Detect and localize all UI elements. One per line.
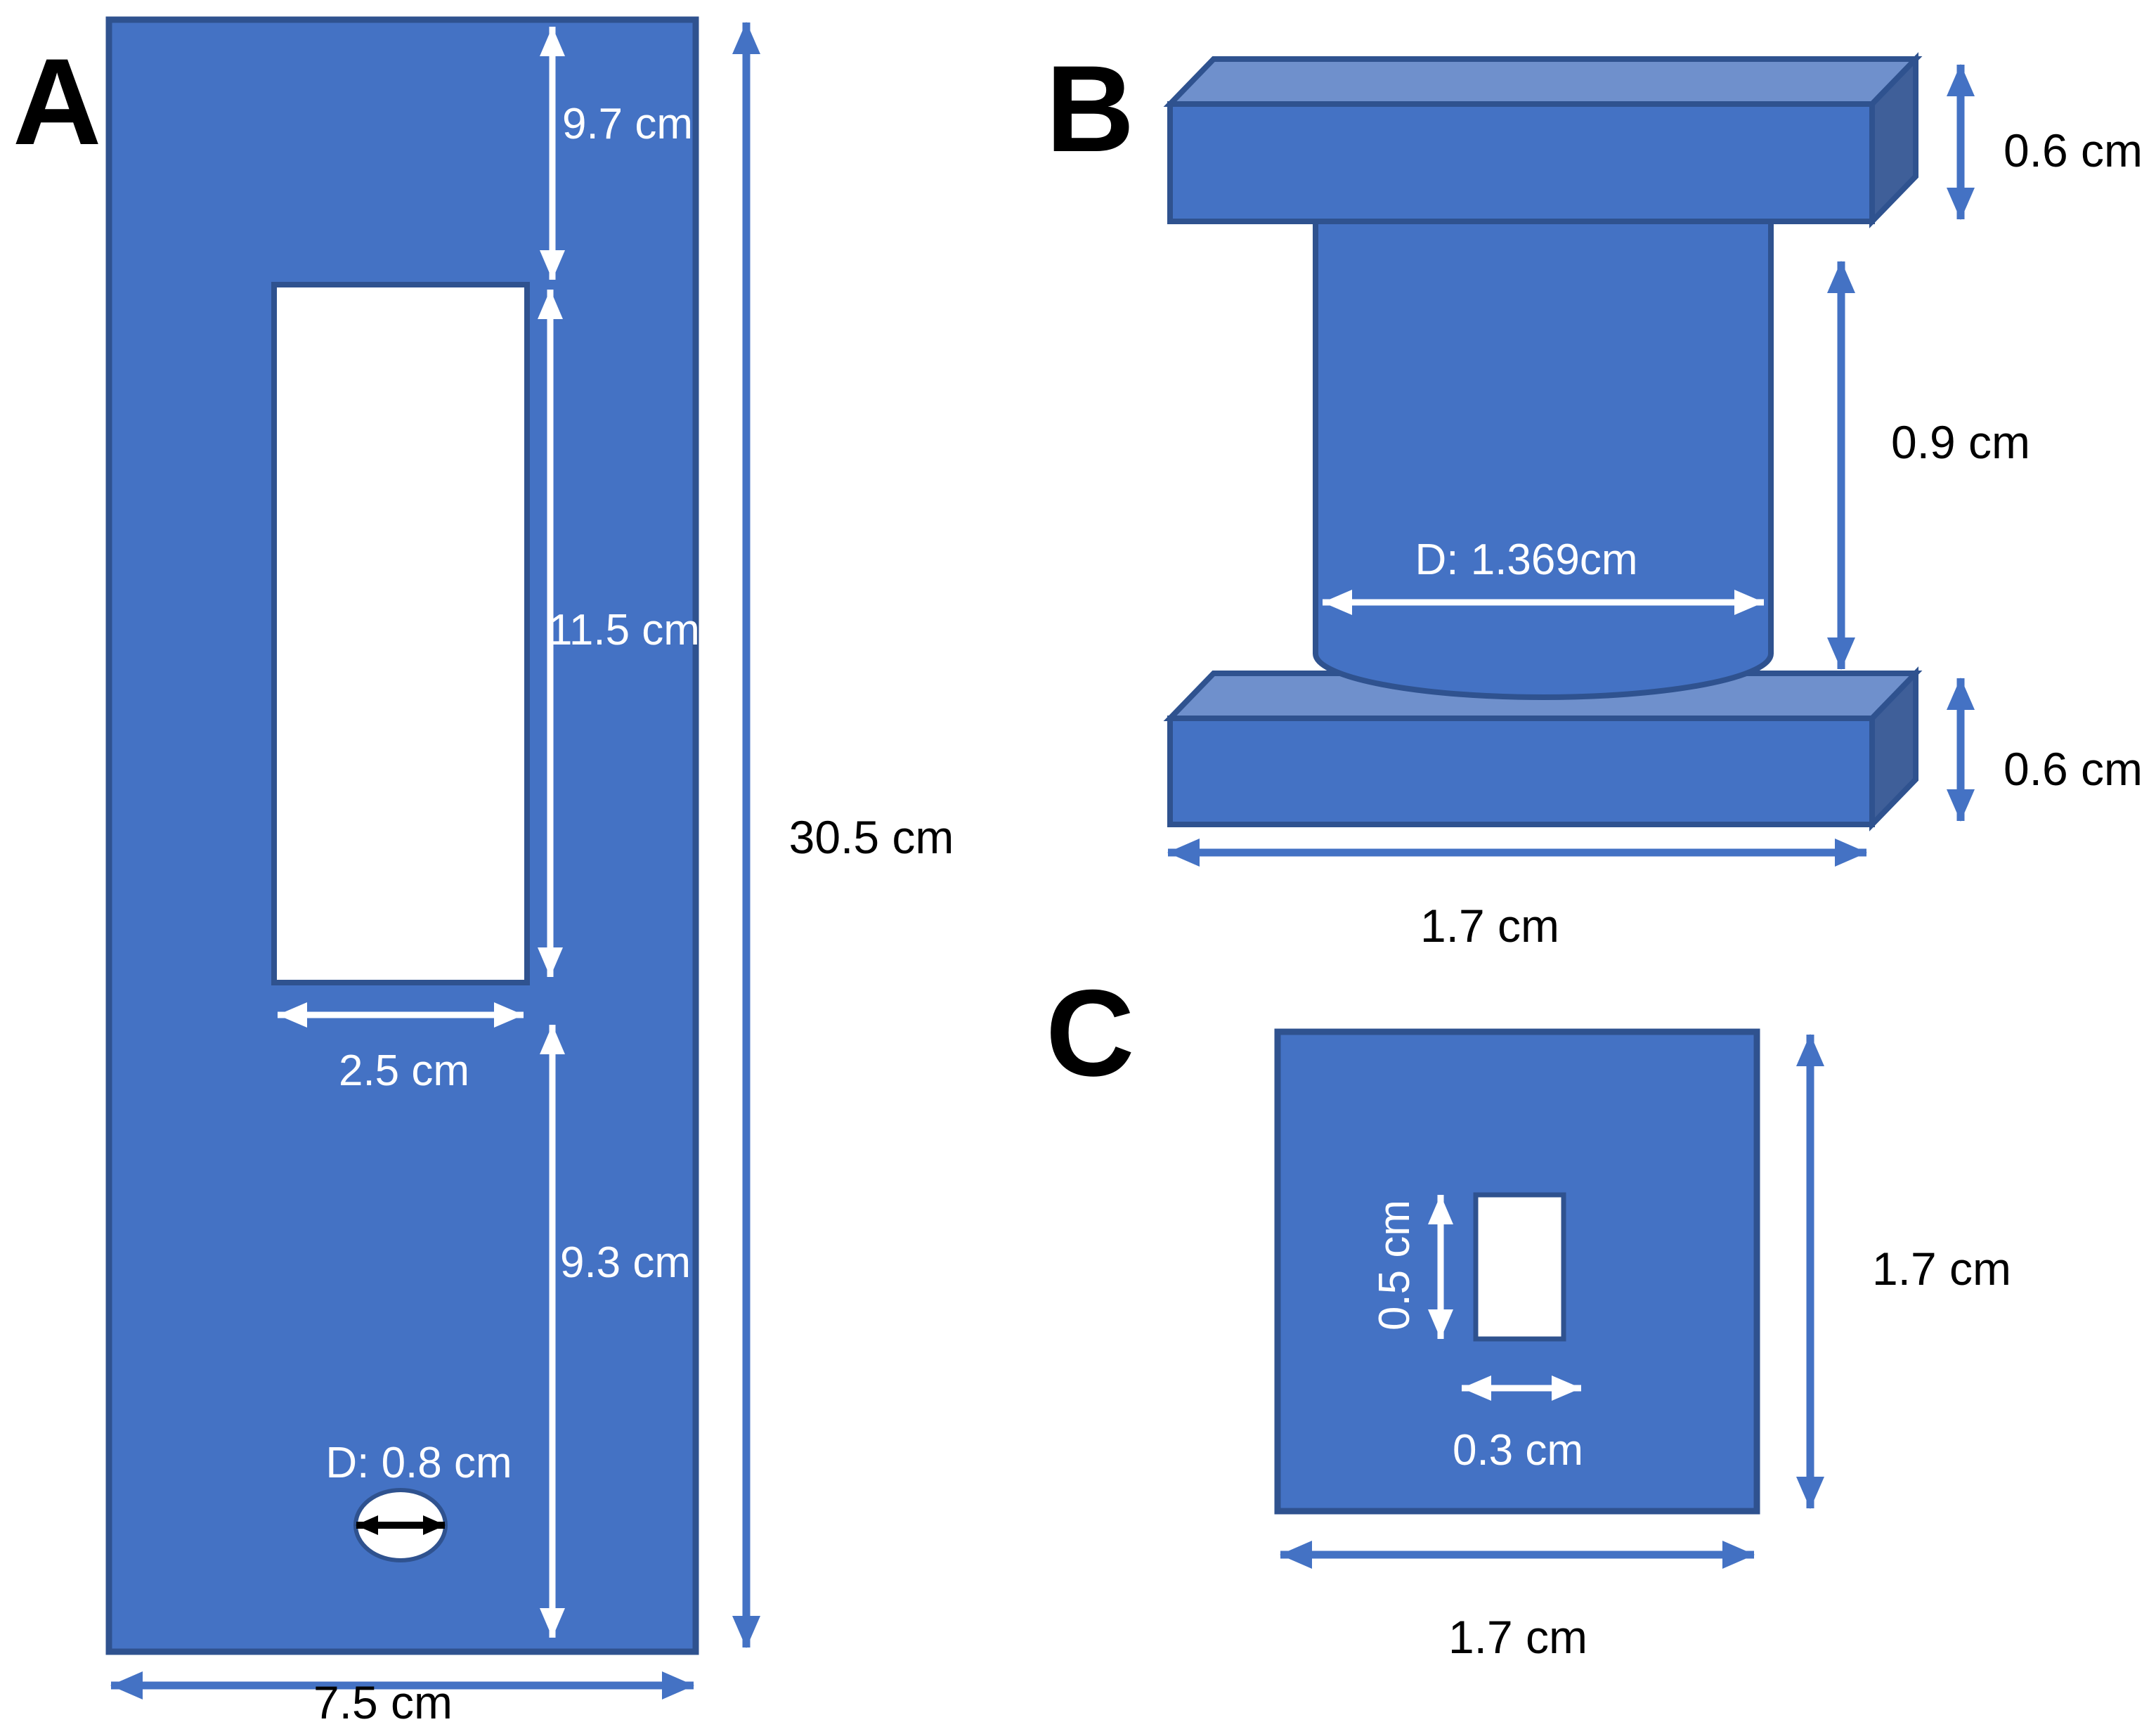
panel-a-dim-text-slot-width: 2.5 cm xyxy=(339,1047,469,1095)
panel-b-bottom-flange-front-face xyxy=(1170,718,1872,824)
panel-b-dim-text-flange-width: 1.7 cm xyxy=(1420,900,1559,952)
panel-b-top-flange-top-face xyxy=(1170,59,1916,104)
panel-a-dim-text-total-width: 7.5 cm xyxy=(313,1676,453,1722)
panel-b-dim-text-top-flange: 0.6 cm xyxy=(2004,124,2143,176)
panel-c-dim-text-plate-width: 1.7 cm xyxy=(1448,1611,1587,1663)
panel-c-dim-text-cutout-height: 0.5 cm xyxy=(1370,1200,1419,1331)
panel-c-dim-text-cutout-width: 0.3 cm xyxy=(1453,1426,1583,1475)
panel-b-cylinder xyxy=(1316,221,1771,697)
panel-a-slot-cutout xyxy=(274,285,527,983)
panel-b-label: B xyxy=(1046,41,1134,178)
panel-a-dim-text-below-slot: 9.3 cm xyxy=(560,1238,691,1287)
panel-a-label: A xyxy=(13,34,101,171)
panel-b-dim-text-cylinder-diameter: D: 1.369cm xyxy=(1415,536,1637,584)
panel-c-label: C xyxy=(1046,965,1134,1102)
panel-b-dim-text-bottom-flange: 0.6 cm xyxy=(2004,743,2143,795)
panel-a-dim-text-hole-diameter: D: 0.8 cm xyxy=(325,1439,512,1487)
panel-a-dim-text-slot-height: 11.5 cm xyxy=(548,606,700,654)
panel-c-dim-text-plate-height: 1.7 cm xyxy=(1872,1243,2011,1295)
panel-a-dim-text-total-height: 30.5 cm xyxy=(789,811,954,863)
panel-b-top-flange-front-face xyxy=(1170,104,1872,221)
figure-canvas: A 9.7 cm 11.5 cm 2.5 cm 9.3 cm D: 0.8 cm… xyxy=(0,0,2156,1722)
panel-b-dim-text-cylinder-height: 0.9 cm xyxy=(1891,416,2030,468)
panel-c-slot-cutout xyxy=(1476,1195,1564,1339)
panel-a-dim-text-top-gap: 9.7 cm xyxy=(562,100,693,148)
dimension-diagram: A 9.7 cm 11.5 cm 2.5 cm 9.3 cm D: 0.8 cm… xyxy=(0,0,2156,1722)
